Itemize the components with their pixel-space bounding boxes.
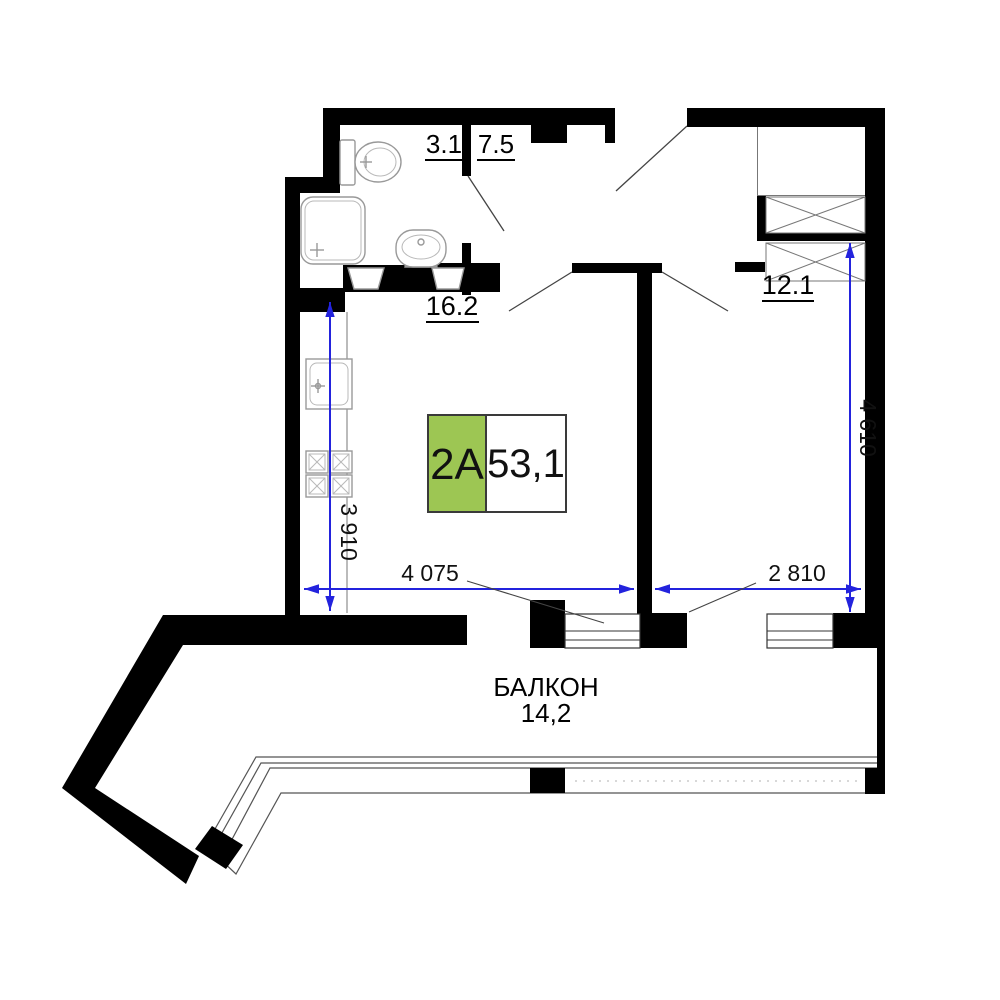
wall-wardrobe-shelf: [757, 233, 865, 241]
wall-right-corner: [865, 768, 885, 794]
balcony-windows: [565, 614, 833, 648]
leader-bedroom-width: [689, 583, 756, 612]
bathroom-fixtures: [301, 140, 446, 267]
wall-balcony-door-pier: [530, 600, 565, 648]
unit-type-label: 2A: [430, 440, 484, 489]
door-swing-living: [509, 272, 572, 311]
wall-hall-stub: [735, 262, 765, 272]
wall-bottom-center-block: [640, 613, 687, 648]
door-swing-bedroom: [662, 272, 728, 311]
wall-bath-bottom-left: [300, 288, 345, 312]
wall-balcony-angled: [62, 615, 199, 884]
toilet-icon: [340, 140, 401, 185]
wall-right-lower: [877, 648, 885, 770]
wall-bottom-right-block: [833, 613, 885, 648]
balcony-railing: [203, 757, 884, 874]
wall-bottom: [163, 615, 467, 645]
shower-icon: [301, 197, 365, 264]
wall-top-right: [687, 108, 885, 127]
unit-total-area: 53,1: [487, 442, 565, 486]
room-label-living-kitchen: 16.2: [426, 291, 479, 321]
room-label-hallway: 7.5: [478, 129, 514, 159]
unit-badge: 2A 53,1: [428, 415, 566, 512]
floor-plan-page: 3 910 4 610 4 075 2 810 3.1 7.5 16.2 12.…: [0, 0, 1000, 1000]
door-swing-bathroom: [468, 176, 504, 231]
wall-entry-jamb: [605, 108, 615, 143]
room-label-balcony-area: 14,2: [521, 698, 572, 728]
washbasin-icon: [396, 230, 446, 267]
room-label-bathroom: 3.1: [426, 129, 462, 159]
bath-door-leaf-icon: [348, 268, 384, 289]
dimension-kitchen-depth: 3 910: [336, 503, 362, 561]
floor-plan-svg: 3 910 4 610 4 075 2 810 3.1 7.5 16.2 12.…: [0, 0, 1000, 1000]
wall-top-left: [323, 108, 615, 125]
dimension-bedroom-width: 2 810: [768, 560, 826, 586]
wall-right: [865, 108, 885, 648]
wall-room-divider: [637, 272, 652, 615]
railing-pillar: [530, 768, 565, 793]
bath-door-leaf-icon: [432, 268, 464, 289]
wall-bath-right-upper: [462, 125, 471, 176]
room-label-bedroom: 12.1: [762, 270, 815, 300]
dimension-bedroom-depth: 4 610: [855, 399, 881, 457]
door-swing-entrance: [616, 126, 687, 191]
wall-left: [285, 177, 300, 615]
dimension-living-width: 4 075: [401, 560, 459, 586]
wall-t-header: [572, 263, 662, 273]
wall-entry-pier: [531, 125, 567, 143]
wardrobe-icon: [757, 127, 865, 281]
